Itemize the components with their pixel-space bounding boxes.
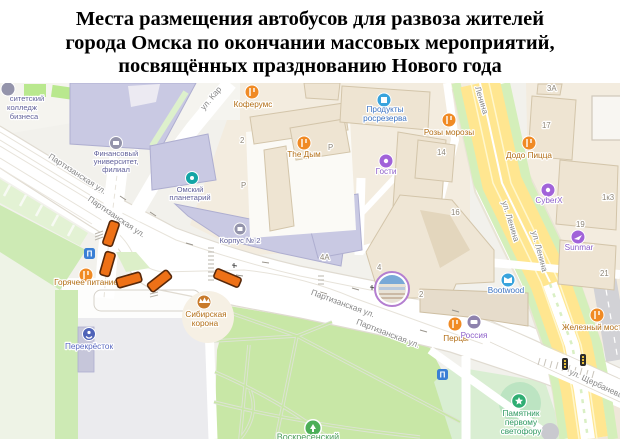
- svg-text:светофору: светофору: [501, 427, 543, 436]
- svg-text:Воскресенский: Воскресенский: [277, 432, 339, 439]
- svg-text:4: 4: [377, 263, 382, 272]
- svg-text:бизнеса: бизнеса: [10, 112, 39, 121]
- svg-text:2: 2: [419, 290, 423, 299]
- svg-text:2: 2: [240, 136, 244, 145]
- svg-text:Гости: Гости: [376, 167, 397, 176]
- svg-text:Железный мост: Железный мост: [562, 323, 620, 332]
- svg-text:П: П: [440, 371, 446, 380]
- svg-text:филиал: филиал: [102, 165, 130, 174]
- svg-text:21: 21: [600, 269, 609, 278]
- svg-text:Bootwood: Bootwood: [488, 286, 525, 295]
- svg-text:планетарий: планетарий: [169, 193, 210, 202]
- svg-text:Додо Пицца: Додо Пицца: [506, 151, 552, 160]
- svg-text:П: П: [87, 250, 93, 259]
- svg-text:Перекрёсток: Перекрёсток: [65, 342, 114, 351]
- svg-text:корона: корона: [192, 319, 219, 328]
- svg-text:Корпус № 2: Корпус № 2: [219, 236, 260, 245]
- svg-text:19: 19: [576, 220, 585, 229]
- svg-text:ситетский: ситетский: [10, 94, 44, 103]
- svg-text:росрезерва: росрезерва: [363, 114, 407, 123]
- svg-text:Сибирская: Сибирская: [185, 310, 226, 319]
- svg-text:CyberX: CyberX: [535, 196, 563, 205]
- svg-text:Коферумс: Коферумс: [234, 100, 273, 109]
- svg-text:первому: первому: [505, 418, 538, 427]
- svg-text:Продукты: Продукты: [367, 105, 404, 114]
- svg-text:P: P: [328, 143, 333, 152]
- svg-text:17: 17: [542, 121, 551, 130]
- svg-text:3А: 3А: [547, 84, 557, 93]
- svg-text:The Дым: The Дым: [287, 150, 321, 159]
- svg-text:Розы морозы: Розы морозы: [424, 128, 474, 137]
- svg-text:колледж: колледж: [7, 103, 38, 112]
- svg-text:Россия: Россия: [461, 331, 488, 340]
- svg-text:16: 16: [451, 208, 460, 217]
- svg-text:Sunmar: Sunmar: [565, 243, 594, 252]
- svg-text:Горячее питание: Горячее питание: [54, 278, 118, 287]
- svg-text:4А: 4А: [320, 253, 330, 262]
- svg-text:P: P: [241, 181, 246, 190]
- svg-text:1к3: 1к3: [602, 193, 614, 202]
- svg-text:Памятник: Памятник: [503, 409, 540, 418]
- svg-text:14: 14: [437, 148, 446, 157]
